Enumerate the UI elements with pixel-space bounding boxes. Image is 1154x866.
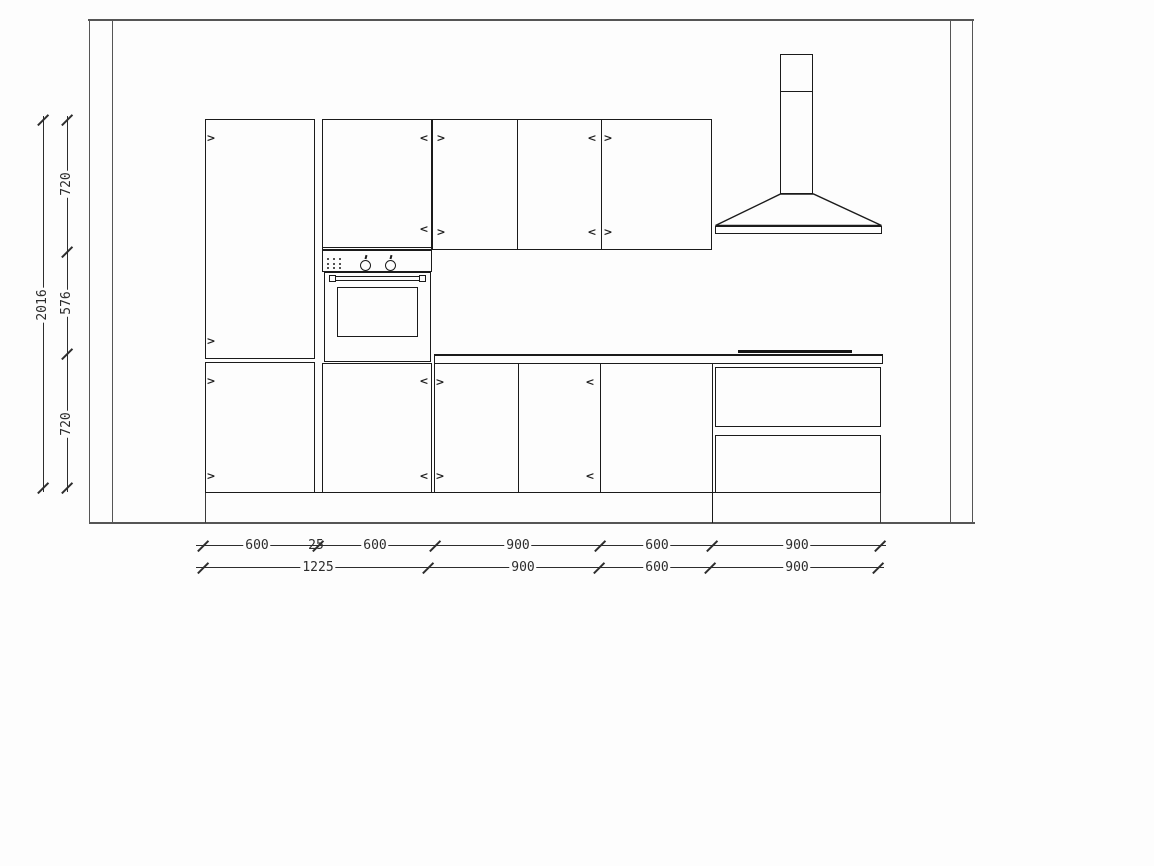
oven-handle-endcap-left <box>329 275 336 282</box>
door-swing-marker: > <box>435 377 444 388</box>
dim-label-row1-base600: 600 <box>643 539 670 553</box>
dim-label-row1-base900: 900 <box>504 539 531 553</box>
floor-line <box>89 522 975 524</box>
door-swing-marker: > <box>603 133 612 144</box>
cooktop-hob <box>738 350 852 354</box>
door-swing-marker: < <box>419 471 428 482</box>
door-swing-marker: < <box>587 227 596 238</box>
hood-skirt <box>715 226 882 234</box>
dim-label-splash-height: 576 <box>60 289 74 316</box>
hood-canopy <box>713 192 884 228</box>
door-swing-marker: < <box>585 377 594 388</box>
door-swing-marker: < <box>587 133 596 144</box>
base-cabinet-bottom-line <box>205 492 881 494</box>
dim-label-upper-height: 720 <box>60 170 74 197</box>
dim-label-row1-tall: 600 <box>243 539 270 553</box>
door-swing-marker: > <box>206 376 215 387</box>
hood-chimney <box>780 54 813 194</box>
door-swing-marker: > <box>603 227 612 238</box>
left-wall-outer-line <box>89 19 90 523</box>
dim-label-total-height: 2016 <box>36 287 50 322</box>
dimension-line-row2 <box>196 567 884 568</box>
hood-chimney-joint-line <box>781 91 812 92</box>
drawer-front-upper <box>715 367 881 428</box>
oven-handle <box>331 276 423 281</box>
dim-label-row2-wall900: 900 <box>509 561 536 575</box>
oven-knob-right <box>385 260 396 271</box>
door-swing-marker: < <box>419 224 428 235</box>
countertop <box>434 354 883 364</box>
oven-door-window <box>337 287 418 337</box>
door-swing-marker: > <box>206 336 215 347</box>
base-cabinet-600-door <box>600 363 713 493</box>
dim-label-row2-tall-run: 1225 <box>300 561 335 575</box>
door-swing-marker: > <box>436 227 445 238</box>
dim-label-row1-drawers: 900 <box>783 539 810 553</box>
plinth-left-line <box>205 493 206 523</box>
door-swing-marker: > <box>436 133 445 144</box>
tall-cabinet-lower-door <box>205 362 315 493</box>
door-swing-marker: < <box>419 133 428 144</box>
kitchen-elevation-drawing: > > > > < < > > < < > > < < > > < < 2016… <box>0 0 1154 866</box>
door-swing-marker: < <box>419 376 428 387</box>
tall-cabinet-upper-door <box>205 119 315 359</box>
plinth-right-line <box>880 493 881 523</box>
door-swing-marker: > <box>206 471 215 482</box>
door-swing-marker: > <box>435 471 444 482</box>
oven-base-panel <box>322 363 432 493</box>
drawer-front-lower <box>715 435 881 494</box>
wall-cabinet-600-door <box>601 119 713 250</box>
base-cabinet-900-left-door <box>434 363 519 493</box>
right-wall-outer-line <box>972 19 974 523</box>
oven-knob-left <box>360 260 371 271</box>
dim-label-row2-hood: 900 <box>783 561 810 575</box>
dim-label-row1-filler: 25 <box>306 539 326 553</box>
dim-label-row2-wall600: 600 <box>643 561 670 575</box>
dim-label-row1-oven: 600 <box>361 539 388 553</box>
dim-label-base-height: 720 <box>60 410 74 437</box>
oven-wall-cabinet-bottom-line <box>323 247 431 248</box>
oven-wall-cabinet-door <box>322 119 432 250</box>
right-wall-inner-line <box>950 19 951 523</box>
plinth-middle-line <box>712 363 714 523</box>
door-swing-marker: > <box>206 133 215 144</box>
oven-handle-endcap-right <box>419 275 426 282</box>
wall-top-line <box>88 19 974 21</box>
left-wall-inner-line <box>112 19 113 523</box>
door-swing-marker: < <box>585 471 594 482</box>
